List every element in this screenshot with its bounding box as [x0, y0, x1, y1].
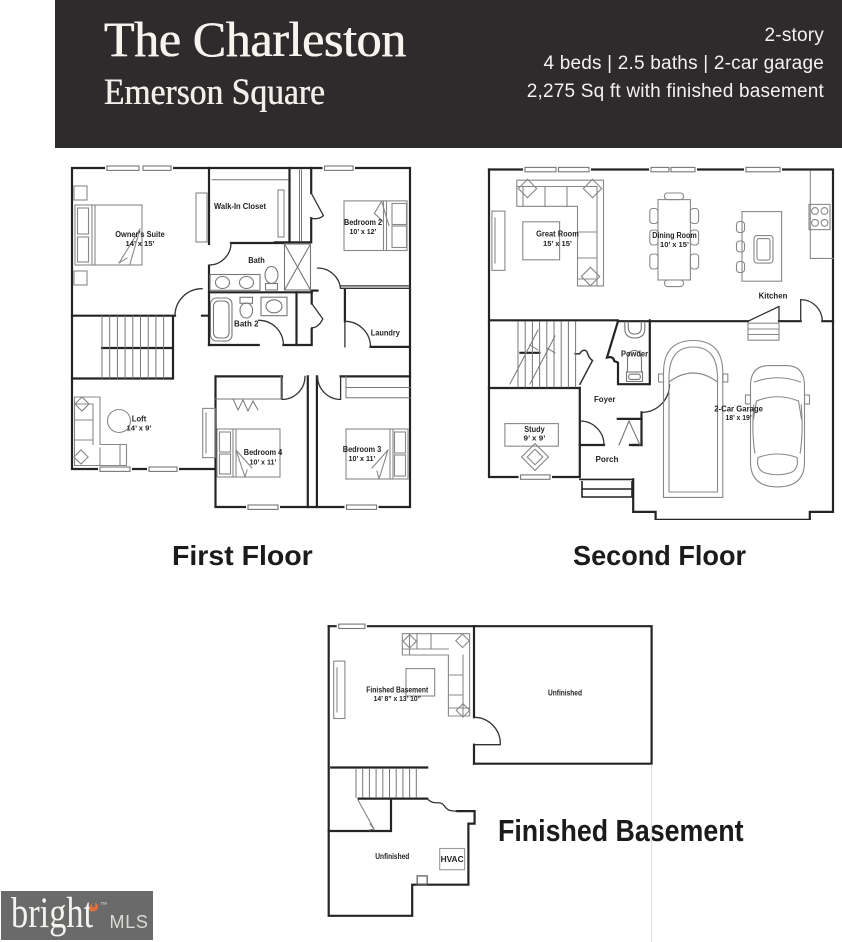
svg-text:10’ x 11’: 10’ x 11’	[349, 454, 376, 463]
svg-text:10’ x 11’: 10’ x 11’	[250, 457, 277, 466]
svg-text:Loft: Loft	[132, 414, 147, 423]
svg-text:Finished Basement: Finished Basement	[366, 685, 428, 694]
svg-text:™: ™	[100, 900, 107, 909]
svg-text:15’ x 15’: 15’ x 15’	[543, 239, 572, 248]
svg-text:Bedroom 4: Bedroom 4	[244, 448, 283, 457]
svg-text:Great Room: Great Room	[536, 230, 579, 239]
svg-text:Kitchen: Kitchen	[759, 292, 788, 301]
svg-text:10’ x 15’: 10’ x 15’	[660, 240, 689, 249]
svg-text:14’ 8” x 13’ 10”: 14’ 8” x 13’ 10”	[374, 694, 422, 703]
svg-text:Bedroom 3: Bedroom 3	[343, 445, 382, 454]
svg-text:Bedroom 2: Bedroom 2	[344, 218, 383, 227]
svg-text:Dining Room: Dining Room	[652, 231, 696, 240]
svg-text:9’ x 9’: 9’ x 9’	[524, 434, 546, 443]
svg-text:10’ x 12’: 10’ x 12’	[350, 227, 377, 236]
svg-text:Foyer: Foyer	[594, 395, 615, 404]
svg-text:Laundry: Laundry	[371, 328, 401, 337]
svg-text:Porch: Porch	[596, 455, 619, 464]
svg-text:14’ x 15’: 14’ x 15’	[126, 239, 155, 248]
svg-text:Walk-In Closet: Walk-In Closet	[214, 202, 266, 211]
svg-text:Bath: Bath	[248, 256, 265, 265]
svg-text:Study: Study	[524, 425, 545, 434]
svg-text:Unfinished: Unfinished	[375, 852, 409, 861]
svg-text:Unfinished: Unfinished	[548, 689, 582, 698]
svg-text:Bath 2: Bath 2	[234, 320, 259, 329]
svg-text:Powder: Powder	[621, 350, 648, 359]
svg-text:Owner’s Suite: Owner’s Suite	[115, 230, 165, 239]
svg-text:14’ x 9’: 14’ x 9’	[127, 423, 152, 432]
svg-text:HVAC: HVAC	[441, 855, 464, 864]
svg-text:18’ x 19’: 18’ x 19’	[725, 413, 751, 422]
